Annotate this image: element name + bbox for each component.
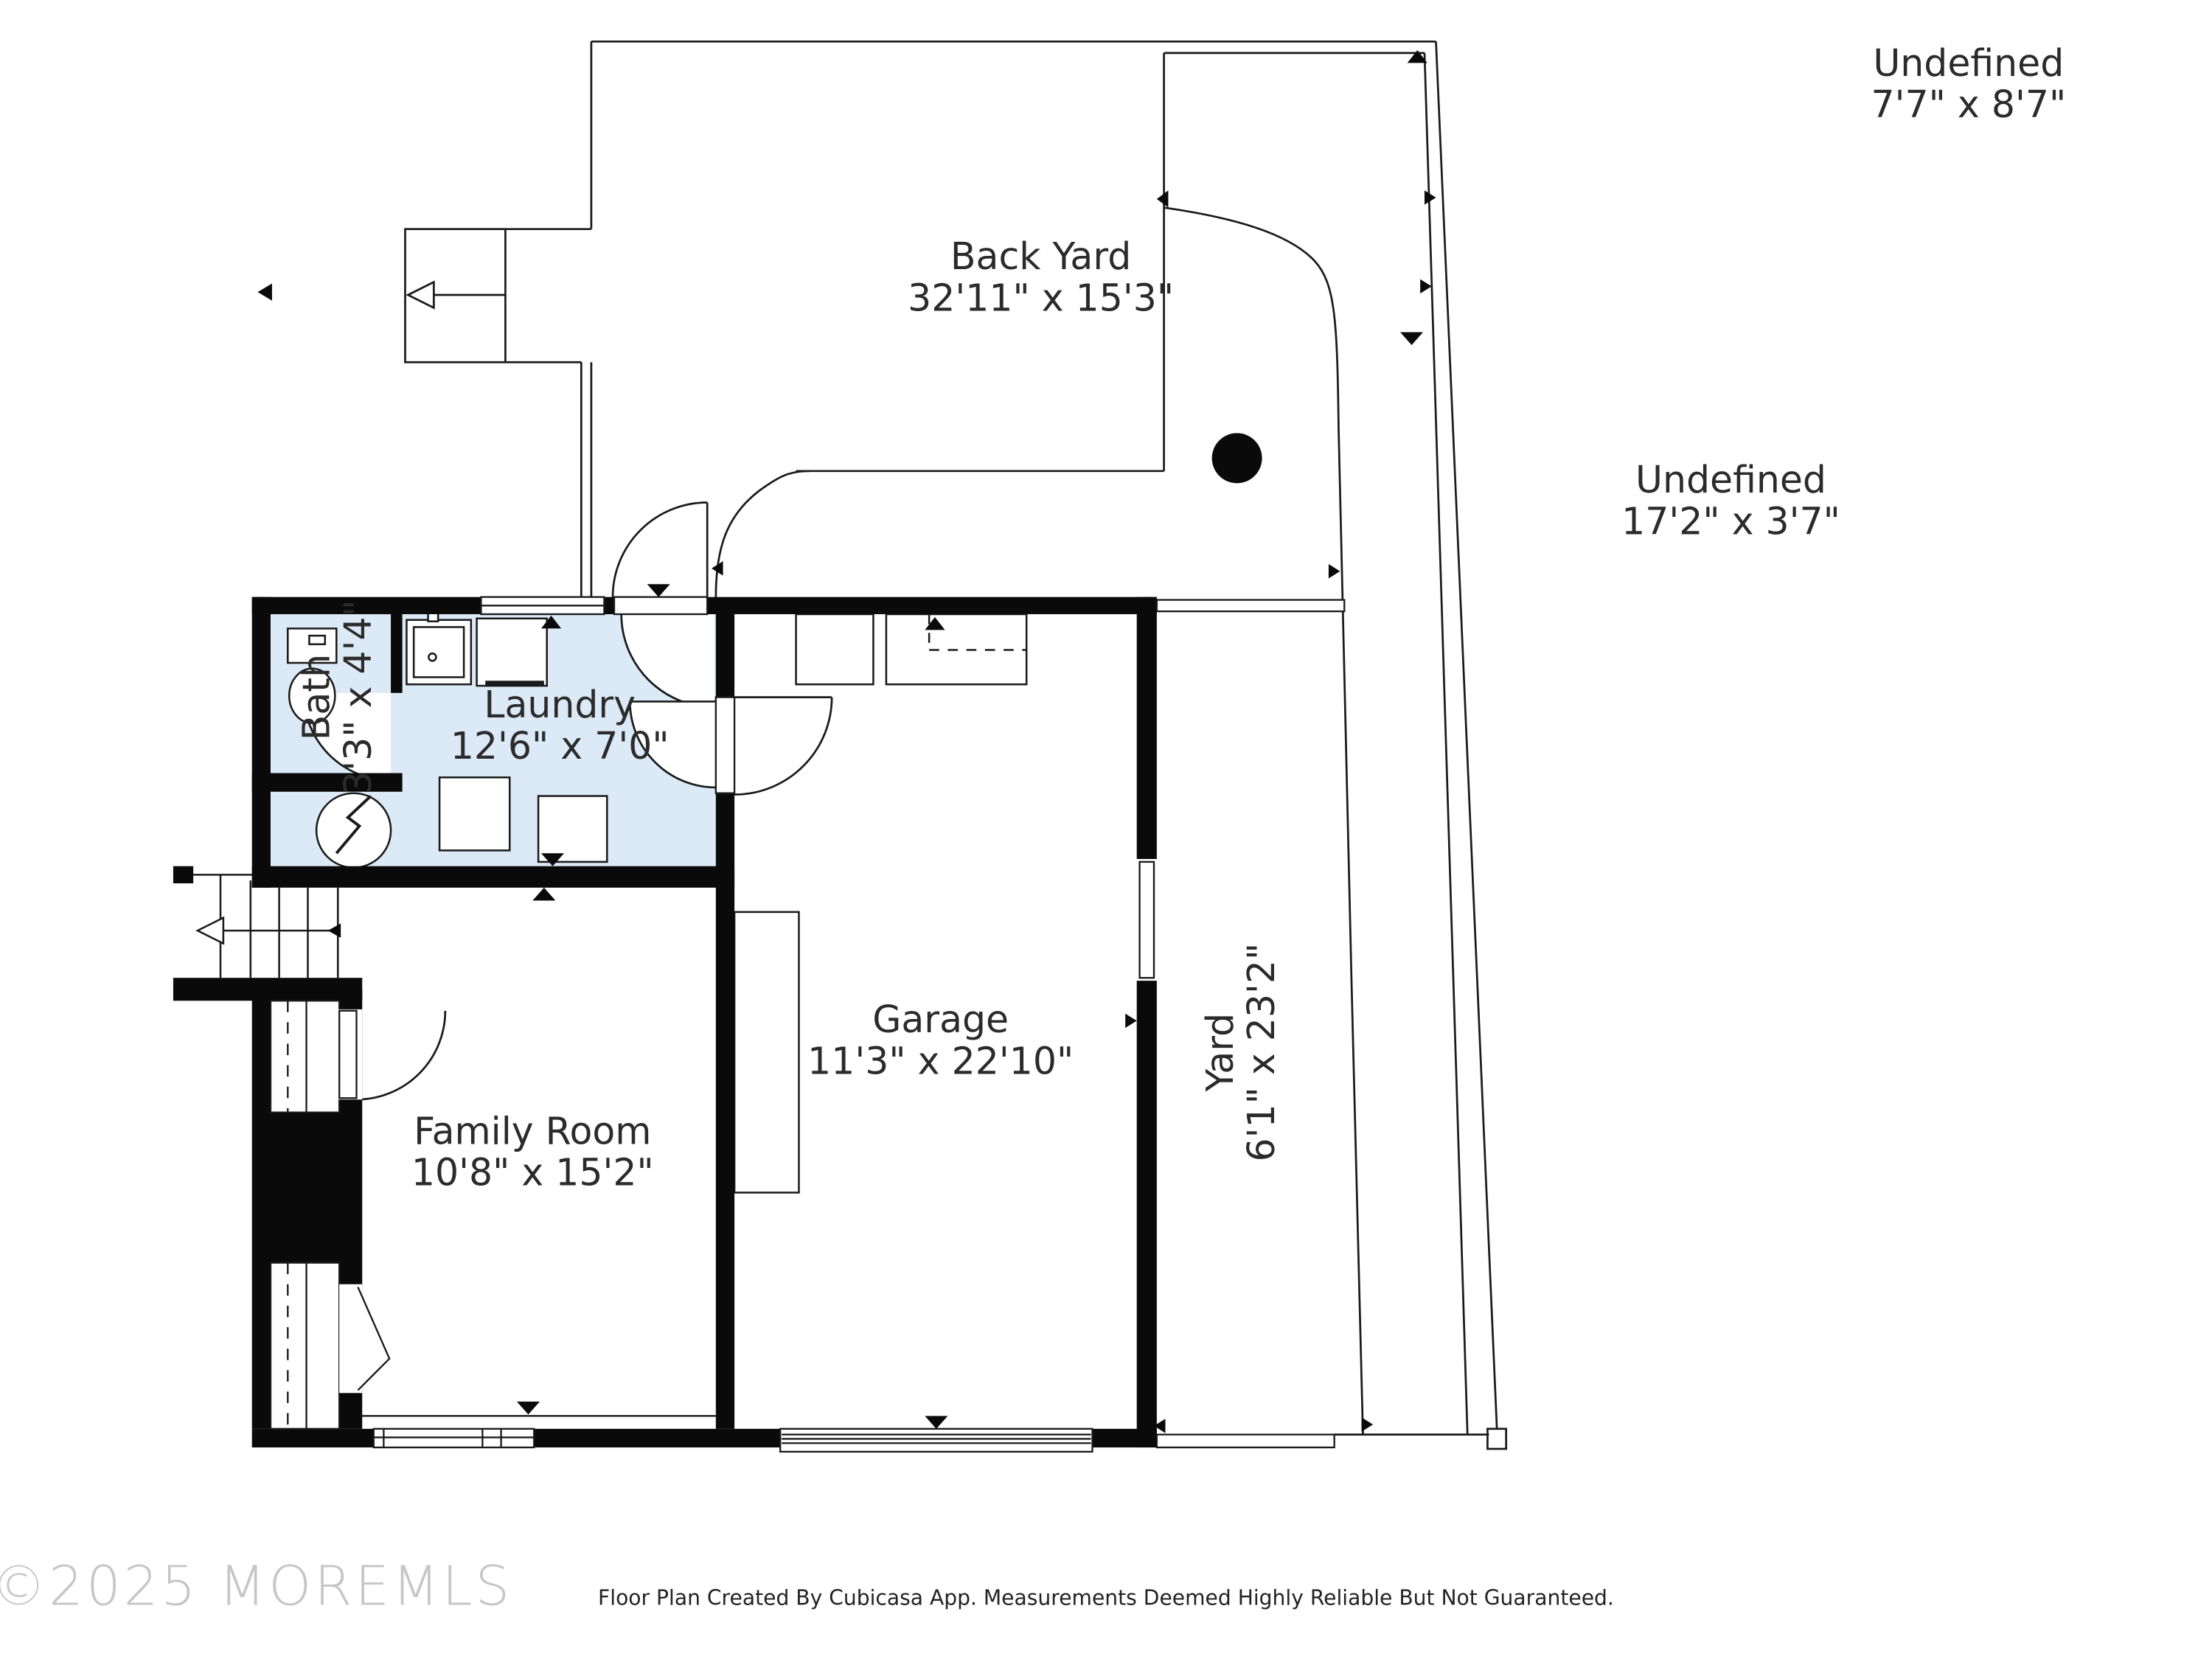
- garage-workbench-icon: [734, 912, 799, 1193]
- room-label-laundry: Laundry 12'6" x 7'0": [451, 686, 669, 769]
- room-label-undefined-side: Undefined 17'2" x 3'7": [1621, 461, 1840, 544]
- tree-icon: [1212, 433, 1262, 483]
- angled-door: [339, 1284, 389, 1394]
- yard-gate-top: [1157, 600, 1344, 612]
- garage-door: [780, 1429, 1092, 1452]
- room-label-family-room: Family Room 10'8" x 15'2": [411, 1113, 654, 1196]
- water-heater-icon: [316, 793, 391, 868]
- room-label-back-yard: Back Yard 32'11" x 15'3": [908, 237, 1174, 321]
- garage-cabinet-icons: [796, 614, 1027, 684]
- garage-side-window: [1137, 859, 1157, 981]
- deck-stoop: [406, 229, 591, 597]
- room-label-undefined-upper: Undefined 7'7" x 8'7": [1871, 44, 2067, 128]
- stairs-direction-arrow: [198, 918, 341, 944]
- disclaimer-text: Floor Plan Created By Cubicasa App. Meas…: [0, 1587, 2212, 1610]
- room-label-yard: Yard 6'1" x 23'2": [1201, 943, 1284, 1162]
- room-label-bath: Bath 3'3" x 4'4": [298, 599, 381, 795]
- room-label-garage: Garage 11'3" x 22'10": [807, 1001, 1074, 1084]
- washer-icon: [439, 777, 509, 850]
- closet-bay-upper: [271, 1001, 339, 1112]
- dryer-icon: [538, 796, 607, 862]
- yard-gate-bottom: [1157, 1435, 1335, 1447]
- stairs: [176, 874, 341, 978]
- closet-bay-lower: [271, 1263, 339, 1429]
- floor-plan-stage: Back Yard 32'11" x 15'3" Laundry 12'6" x…: [0, 0, 2212, 1659]
- front-door: [336, 1009, 362, 1099]
- counter-appliance-icon: [477, 619, 547, 686]
- family-room-windows: [374, 1429, 534, 1447]
